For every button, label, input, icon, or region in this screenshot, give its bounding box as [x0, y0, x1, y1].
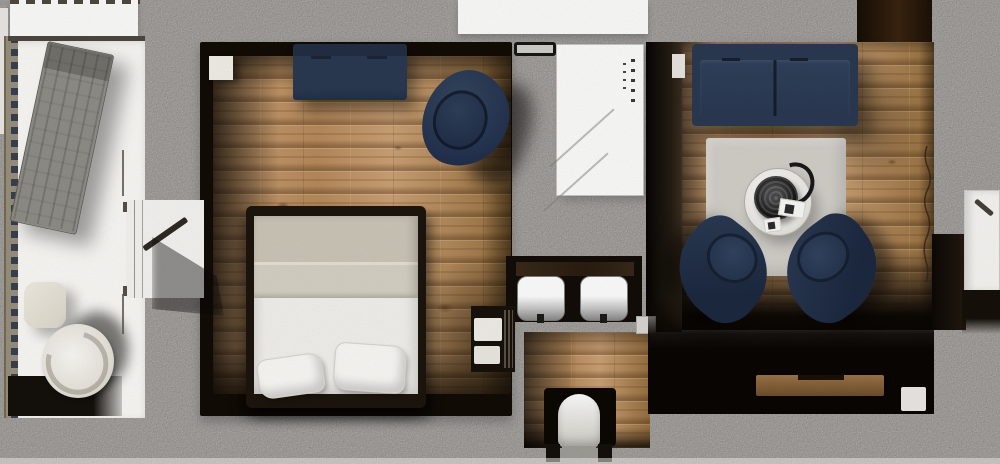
towel-box — [474, 346, 500, 364]
floor-plan — [0, 0, 1000, 464]
bedside-table — [209, 56, 233, 80]
wardrobe-hooks — [623, 59, 635, 105]
door-handle — [974, 199, 994, 217]
door-mullion — [142, 200, 143, 298]
living-room-sofa — [692, 44, 858, 126]
entry-doorway — [857, 0, 932, 42]
balcony-side-table — [24, 282, 66, 328]
card-print — [784, 204, 794, 214]
entrance-door — [964, 190, 1000, 292]
top-railing-line — [10, 0, 140, 4]
white-box — [901, 387, 926, 411]
living-room-shadow-zone — [648, 296, 934, 414]
sofa-seam — [722, 58, 740, 61]
balcony-top-wall — [8, 36, 145, 41]
paper-card — [763, 217, 782, 233]
double-bed — [246, 206, 426, 408]
exterior-patch-top-middle — [458, 0, 648, 34]
hallway-wall-rack — [514, 42, 556, 56]
desk-top — [516, 262, 634, 276]
exterior-patch-top-left — [10, 0, 138, 40]
towel-shelf — [471, 306, 515, 372]
door-mullion — [134, 200, 135, 298]
door-hinge — [123, 202, 127, 212]
card-print — [768, 222, 776, 230]
wall-seam — [122, 294, 124, 334]
wardrobe — [556, 44, 644, 196]
bedroom-bench-sofa — [293, 44, 407, 100]
toilet — [558, 394, 600, 448]
bed-blanket — [254, 216, 418, 298]
towel-box — [474, 318, 502, 341]
bottom-edge-highlight — [0, 458, 1000, 464]
shelf-slats — [502, 310, 513, 368]
bed-pillow — [332, 342, 407, 395]
desk-stool — [517, 276, 565, 321]
wooden-sideboard — [756, 375, 884, 396]
balcony-lounge-chair — [42, 324, 114, 398]
wall-seam — [122, 150, 124, 196]
balcony-railing — [4, 36, 18, 418]
entry-wall — [932, 234, 966, 330]
sofa-side-table — [672, 54, 685, 78]
entry-wall-shadow — [962, 290, 1000, 334]
desk-stool — [580, 276, 628, 321]
